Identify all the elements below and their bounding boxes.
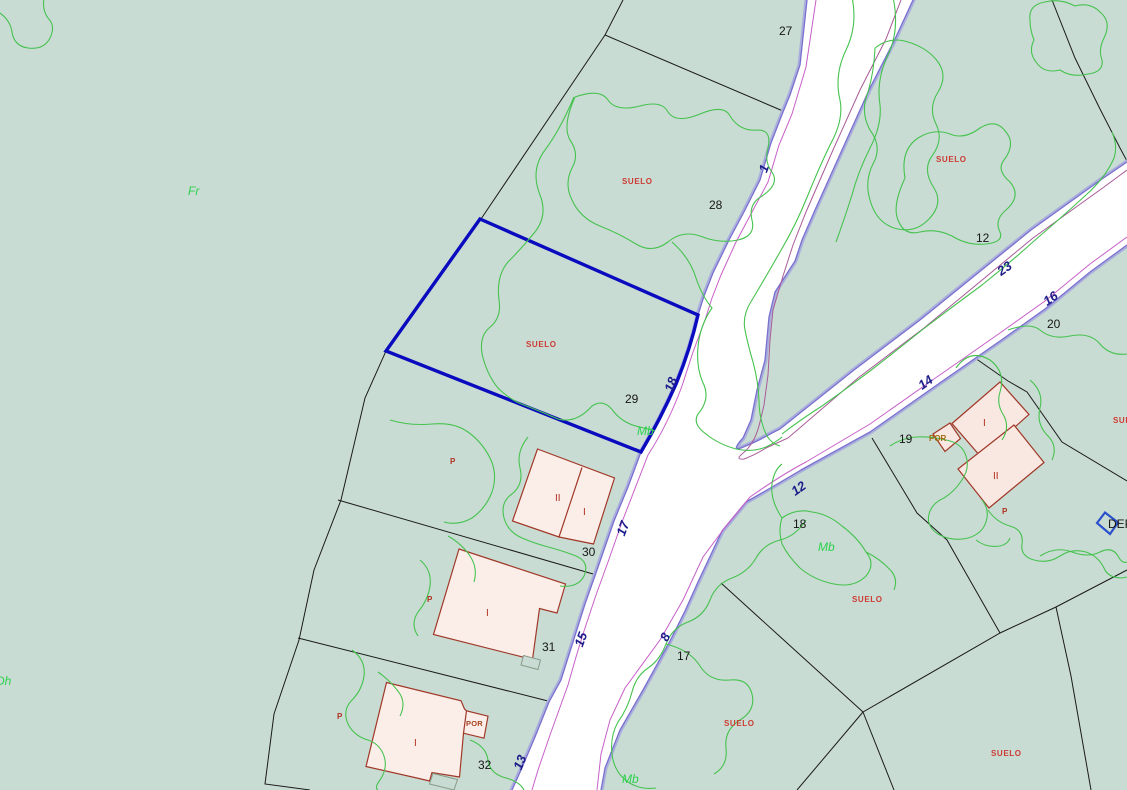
svg-text:II: II — [555, 493, 561, 504]
svg-text:27: 27 — [779, 24, 793, 38]
svg-text:I: I — [583, 507, 586, 518]
svg-text:DEP: DEP — [1108, 517, 1127, 531]
svg-text:29: 29 — [625, 392, 639, 406]
svg-text:SUELO: SUELO — [526, 340, 557, 349]
svg-text:P: P — [1002, 507, 1008, 516]
svg-text:Mb: Mb — [637, 424, 654, 438]
svg-text:17: 17 — [677, 649, 691, 663]
svg-text:I: I — [983, 418, 986, 429]
svg-text:SUELO: SUELO — [936, 155, 967, 164]
svg-text:P: P — [427, 595, 433, 604]
svg-text:II: II — [993, 471, 999, 482]
svg-text:20: 20 — [1047, 317, 1061, 331]
svg-text:I: I — [486, 608, 489, 619]
svg-text:SUELO: SUELO — [852, 595, 883, 604]
svg-text:12: 12 — [976, 231, 990, 245]
svg-text:Mb: Mb — [622, 772, 639, 786]
svg-text:Dh: Dh — [0, 674, 12, 688]
svg-text:P: P — [450, 457, 456, 466]
svg-text:18: 18 — [793, 517, 807, 531]
svg-text:SUELO: SUELO — [724, 719, 755, 728]
svg-text:Fr: Fr — [188, 184, 200, 198]
svg-text:SUELO: SUELO — [991, 749, 1022, 758]
svg-text:I: I — [414, 738, 417, 749]
svg-text:SUELO: SUELO — [622, 177, 653, 186]
svg-text:32: 32 — [478, 758, 492, 772]
svg-text:POR: POR — [929, 434, 947, 443]
svg-text:POR: POR — [466, 719, 483, 728]
svg-text:30: 30 — [582, 545, 596, 559]
svg-text:31: 31 — [542, 640, 556, 654]
svg-text:28: 28 — [709, 198, 723, 212]
svg-text:Mb: Mb — [818, 540, 835, 554]
svg-text:P: P — [337, 712, 343, 721]
svg-text:19: 19 — [899, 432, 913, 446]
svg-text:SUELO: SUELO — [1113, 416, 1127, 425]
